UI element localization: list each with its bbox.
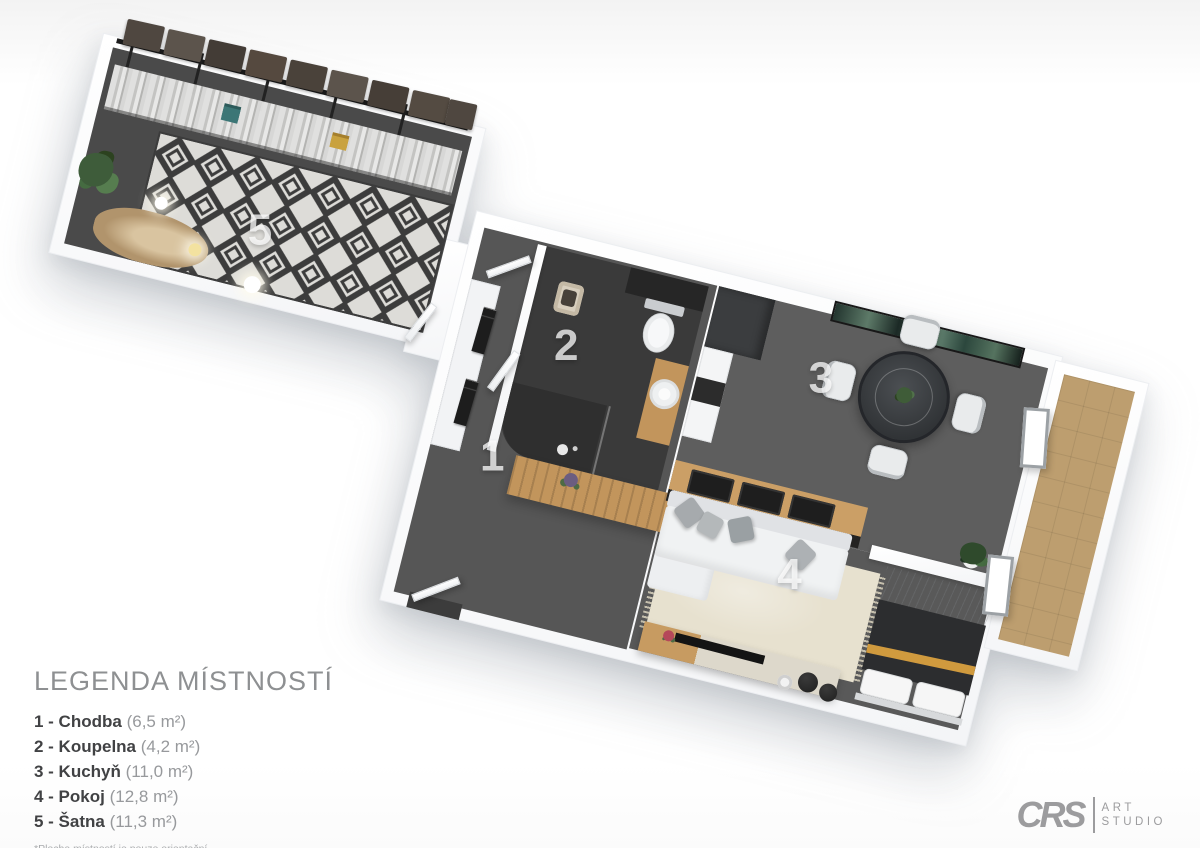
floorplan-3d: 1 2 3 4 5	[0, 0, 1200, 746]
legend-item: 3 - Kuchyň (11,0 m²)	[34, 759, 333, 784]
room-number-koupelna: 2	[554, 321, 578, 371]
legend-item: 4 - Pokoj (12,8 m²)	[34, 784, 333, 809]
legend-item: 5 - Šatna (11,3 m²)	[34, 809, 333, 834]
legend-title: LEGENDA MÍSTNOSTÍ	[34, 666, 333, 697]
legend-item-area: (12,8 m²)	[110, 787, 179, 806]
legend-item-area: (4,2 m²)	[141, 737, 201, 756]
legend-item-label: 2 - Koupelna	[34, 737, 136, 756]
legend-item-area: (11,0 m²)	[126, 762, 194, 781]
legend-item-label: 4 - Pokoj	[34, 787, 105, 806]
legend-item: 1 - Chodba (6,5 m²)	[34, 709, 333, 734]
legend-footnote: *Plocha místností je pouze orientační	[34, 843, 333, 848]
studio-logo: CRS ART STUDIO	[1017, 794, 1166, 836]
room-number-chodba: 1	[480, 431, 504, 481]
logo-text: ART STUDIO	[1102, 802, 1166, 828]
logo-divider	[1093, 797, 1095, 833]
room-number-pokoj: 4	[777, 550, 801, 600]
sofa-pillow	[727, 516, 755, 544]
balcony-window	[1020, 407, 1050, 469]
legend-item: 2 - Koupelna (4,2 m²)	[34, 734, 333, 759]
room-number-kuchyn: 3	[809, 354, 833, 404]
logo-line-art: ART	[1102, 802, 1166, 814]
legend-item-label: 3 - Kuchyň	[34, 762, 121, 781]
legend-item-label: 1 - Chodba	[34, 712, 122, 731]
legend: LEGENDA MÍSTNOSTÍ 1 - Chodba (6,5 m²) 2 …	[34, 666, 333, 848]
logo-line-studio: STUDIO	[1102, 816, 1166, 828]
logo-brand: CRS	[1017, 794, 1084, 836]
legend-item-area: (11,3 m²)	[110, 812, 178, 831]
room-number-satna: 5	[248, 205, 272, 255]
legend-item-area: (6,5 m²)	[127, 712, 187, 731]
legend-list: 1 - Chodba (6,5 m²) 2 - Koupelna (4,2 m²…	[34, 709, 333, 834]
legend-item-label: 5 - Šatna	[34, 812, 105, 831]
